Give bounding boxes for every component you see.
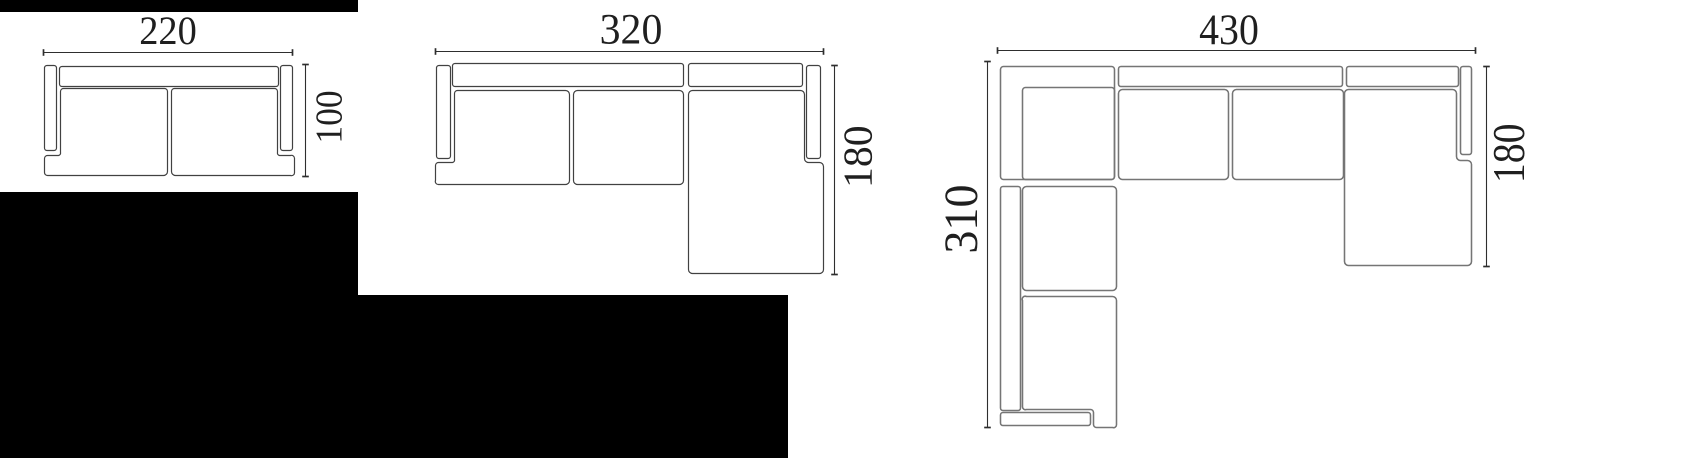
svg-text:310: 310 bbox=[935, 185, 988, 254]
svg-text:220: 220 bbox=[139, 10, 197, 54]
svg-text:180: 180 bbox=[1485, 123, 1535, 183]
svg-text:100: 100 bbox=[307, 90, 349, 143]
svg-text:320: 320 bbox=[600, 6, 663, 54]
svg-text:430: 430 bbox=[1199, 6, 1259, 54]
svg-text:180: 180 bbox=[836, 125, 882, 188]
